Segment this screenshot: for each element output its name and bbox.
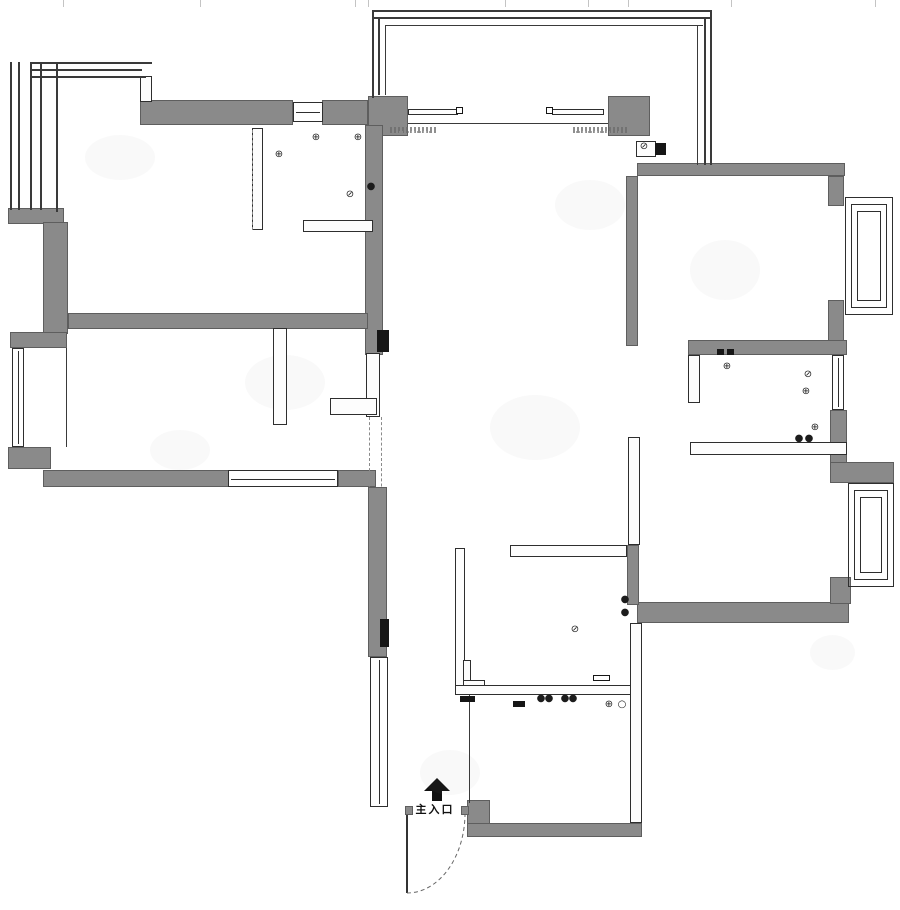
frame-line bbox=[372, 10, 712, 12]
fixture-plate bbox=[456, 107, 463, 114]
partition-wall bbox=[408, 109, 458, 115]
wall-segment bbox=[688, 340, 847, 355]
window bbox=[370, 657, 388, 807]
wall-segment bbox=[828, 176, 844, 206]
dashed-opening bbox=[252, 130, 253, 230]
wall-segment bbox=[830, 462, 894, 483]
tick-mark bbox=[628, 0, 629, 7]
outlet-symbol: ● bbox=[567, 694, 579, 706]
fixture-plate bbox=[546, 107, 553, 114]
scan-smudge bbox=[490, 395, 580, 460]
window bbox=[832, 355, 844, 410]
outlet-symbol: ⊘ bbox=[802, 370, 814, 382]
outlet-symbol: ⊕ bbox=[273, 150, 285, 162]
outlet-symbol: ⊕ bbox=[721, 362, 733, 374]
frame-line bbox=[710, 10, 712, 165]
partition-wall bbox=[140, 76, 152, 102]
fixture-mark bbox=[655, 143, 666, 155]
wall-segment bbox=[637, 163, 845, 176]
scan-smudge bbox=[420, 750, 480, 795]
partition-wall bbox=[273, 328, 287, 425]
partition-wall bbox=[330, 398, 377, 415]
dashed-opening bbox=[369, 417, 371, 507]
bay-window-frame bbox=[857, 211, 881, 301]
outlet-symbol: ● bbox=[619, 595, 631, 607]
tick-mark bbox=[731, 0, 732, 7]
frame-line bbox=[30, 62, 152, 64]
frame-line bbox=[408, 123, 608, 124]
frame-line bbox=[385, 25, 386, 95]
frame-line bbox=[40, 62, 42, 210]
dimension-annotation bbox=[573, 127, 627, 133]
partition-wall bbox=[630, 623, 642, 823]
tick-mark bbox=[875, 0, 876, 7]
wall-segment bbox=[43, 470, 229, 487]
tick-mark bbox=[588, 0, 589, 7]
tick-mark bbox=[505, 0, 506, 7]
tick-mark bbox=[368, 0, 369, 7]
outlet-symbol: ⊘ bbox=[638, 142, 650, 154]
wall-segment bbox=[322, 100, 368, 125]
outlet-symbol: ○ bbox=[616, 700, 628, 712]
frame-line bbox=[56, 62, 58, 212]
wall-segment bbox=[467, 823, 642, 837]
partition-wall bbox=[690, 442, 847, 455]
tick-mark bbox=[355, 0, 356, 7]
fixture-mark bbox=[717, 349, 724, 355]
fixture-mark bbox=[513, 701, 525, 707]
frame-line bbox=[372, 10, 374, 98]
outlet-symbol: ● bbox=[365, 182, 377, 194]
window bbox=[12, 348, 24, 447]
tick-mark bbox=[200, 0, 201, 7]
fixture-mark bbox=[727, 349, 734, 355]
frame-line bbox=[378, 17, 380, 95]
frame-line bbox=[18, 62, 20, 210]
tick-mark bbox=[63, 0, 64, 7]
frame-line bbox=[30, 76, 146, 78]
fixture-plate bbox=[593, 675, 610, 681]
outlet-symbol: ⊘ bbox=[569, 625, 581, 637]
wall-segment bbox=[626, 176, 638, 346]
scan-smudge bbox=[150, 430, 210, 470]
frame-line bbox=[30, 69, 142, 71]
wall-segment bbox=[10, 332, 67, 348]
partition-wall bbox=[463, 680, 485, 686]
outlet-symbol: ⊕ bbox=[352, 133, 364, 145]
wall-segment bbox=[830, 410, 847, 464]
frame-line bbox=[469, 695, 470, 803]
frame-line bbox=[704, 17, 706, 165]
outlet-symbol: ⊕ bbox=[310, 133, 322, 145]
dimension-annotation bbox=[390, 127, 436, 133]
wall-segment bbox=[405, 806, 413, 815]
outlet-symbol: ● bbox=[803, 434, 815, 446]
outlet-symbol: ⊘ bbox=[344, 190, 356, 202]
fixture-mark bbox=[460, 696, 475, 702]
outlet-symbol: ⊕ bbox=[603, 700, 615, 712]
wall-segment bbox=[467, 800, 490, 825]
frame-line bbox=[385, 25, 703, 26]
floor-plan: 主入口 ⊕⊕⊕⊘●⊘⊕⊘⊕⊕●●⊘●●⊕○●●●● bbox=[0, 0, 900, 910]
entrance-door-swing bbox=[404, 813, 474, 898]
scan-smudge bbox=[690, 240, 760, 300]
wall-segment bbox=[461, 806, 469, 815]
partition-wall bbox=[510, 545, 627, 557]
outlet-symbol: ● bbox=[619, 608, 631, 620]
wall-segment bbox=[68, 313, 368, 329]
frame-line bbox=[30, 62, 32, 210]
frame-line bbox=[66, 348, 67, 447]
scan-smudge bbox=[555, 180, 625, 230]
scan-smudge bbox=[810, 635, 855, 670]
partition-wall bbox=[552, 109, 604, 115]
partition-wall bbox=[252, 128, 263, 230]
window bbox=[228, 470, 338, 487]
wall-segment bbox=[637, 602, 849, 623]
outlet-symbol: ⊕ bbox=[800, 387, 812, 399]
scan-smudge bbox=[85, 135, 155, 180]
partition-wall bbox=[688, 355, 700, 403]
window bbox=[293, 102, 323, 122]
partition-wall bbox=[628, 437, 640, 545]
bay-window-frame bbox=[860, 497, 882, 573]
wall-segment bbox=[140, 100, 293, 125]
dashed-opening bbox=[381, 417, 383, 507]
wall-segment bbox=[43, 222, 68, 334]
door-swing-arc bbox=[407, 815, 465, 893]
wall-segment bbox=[8, 447, 51, 469]
fixture-mark bbox=[380, 619, 389, 647]
outlet-symbol: ● bbox=[543, 694, 555, 706]
frame-line bbox=[697, 25, 698, 165]
fixture-mark bbox=[377, 330, 389, 352]
partition-wall bbox=[303, 220, 373, 232]
frame-line bbox=[10, 62, 12, 210]
frame-line bbox=[372, 17, 712, 19]
